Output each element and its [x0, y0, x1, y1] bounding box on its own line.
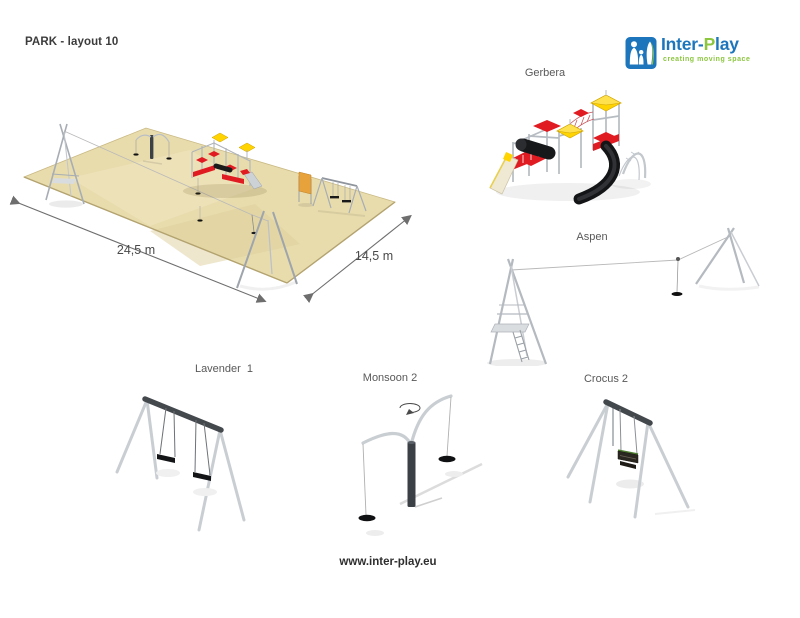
product-image-crocus [560, 388, 718, 530]
product-label-crocus: Crocus 2 [584, 373, 628, 385]
dimension-label-length: 24,5 m [117, 243, 155, 257]
brand-name: Inter-Play [661, 36, 750, 54]
site-plan: 24,5 m 14,5 m [0, 116, 440, 318]
product-label-gerbera: Gerbera [525, 67, 565, 79]
catalog-page: PARK - layout 10 Inter-Play creating mov… [0, 0, 800, 618]
footer-url: www.inter-play.eu [339, 556, 436, 568]
logo-icon [625, 36, 658, 70]
dimension-label-width: 14,5 m [355, 249, 393, 263]
product-image-aspen [475, 226, 775, 366]
product-image-lavender [108, 386, 278, 544]
product-image-monsoon [330, 386, 490, 554]
brand-logo: Inter-Play creating moving space [625, 36, 775, 74]
product-label-lavender: Lavender 1 [195, 363, 253, 375]
brand-tagline: creating moving space [663, 56, 750, 63]
page-title: PARK - layout 10 [25, 36, 118, 48]
product-image-gerbera [473, 84, 657, 208]
product-label-monsoon: Monsoon 2 [363, 372, 417, 384]
